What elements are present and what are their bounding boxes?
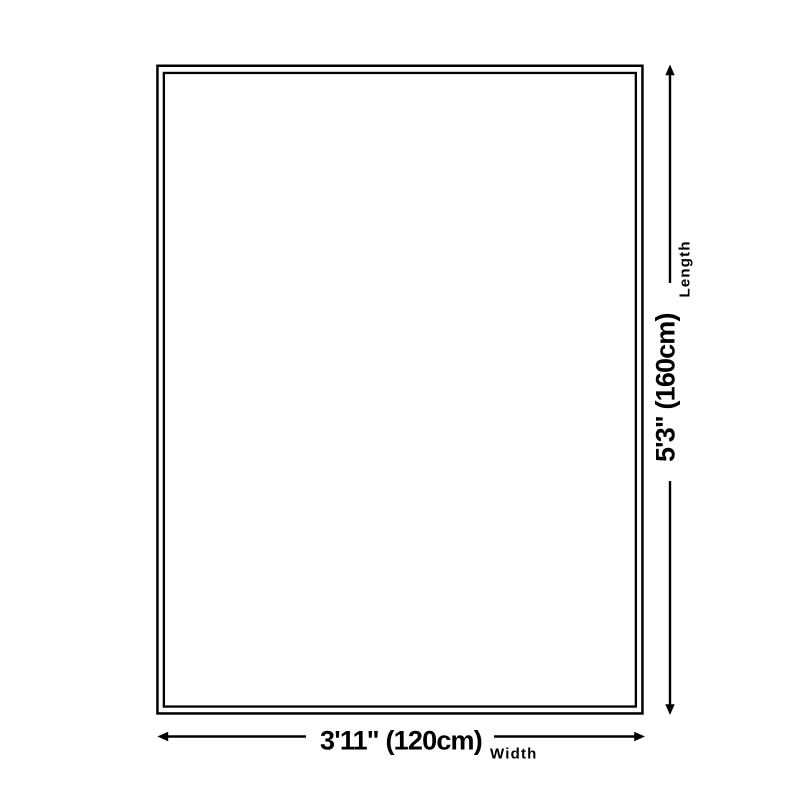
- svg-text:5'3" (160cm): 5'3" (160cm): [651, 313, 681, 462]
- svg-text:Width: Width: [490, 745, 538, 762]
- svg-text:3'11" (120cm): 3'11" (120cm): [320, 726, 482, 756]
- svg-text:Length: Length: [677, 240, 694, 297]
